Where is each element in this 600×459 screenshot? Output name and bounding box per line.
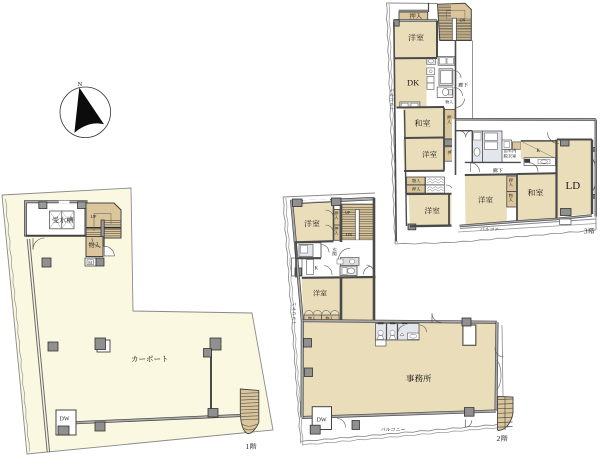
svg-text:K: K (537, 149, 541, 154)
svg-text:UP: UP (91, 214, 97, 219)
svg-text:2: 2 (497, 434, 501, 443)
svg-text:DW: DW (60, 417, 70, 423)
svg-text:K: K (315, 267, 319, 272)
svg-text:UP: UP (345, 210, 351, 215)
svg-text:DN: DN (460, 18, 466, 22)
svg-text:N: N (78, 81, 83, 88)
svg-text:M: M (88, 260, 92, 265)
svg-text:1: 1 (246, 442, 250, 451)
svg-text:LD: LD (566, 180, 581, 192)
svg-text:DW: DW (317, 418, 327, 424)
svg-text:DN: DN (346, 232, 352, 237)
svg-text:DK: DK (407, 78, 420, 88)
svg-text:3: 3 (584, 228, 588, 236)
